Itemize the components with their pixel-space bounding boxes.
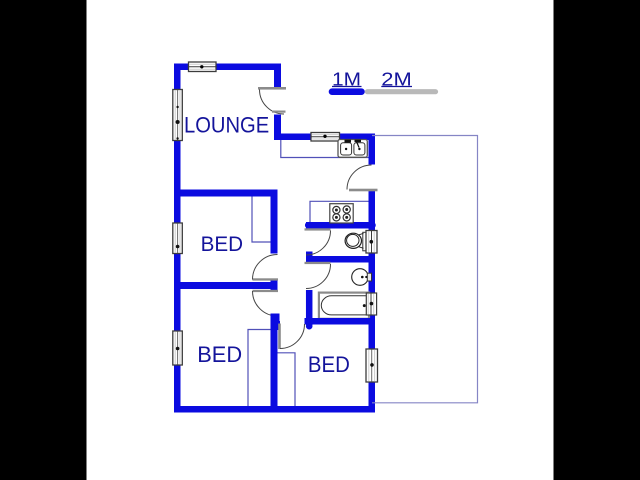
svg-text:BED: BED [308, 352, 350, 377]
svg-text:LOUNGE: LOUNGE [184, 113, 269, 138]
svg-text:BED: BED [197, 342, 242, 367]
svg-text:BED: BED [201, 232, 244, 256]
